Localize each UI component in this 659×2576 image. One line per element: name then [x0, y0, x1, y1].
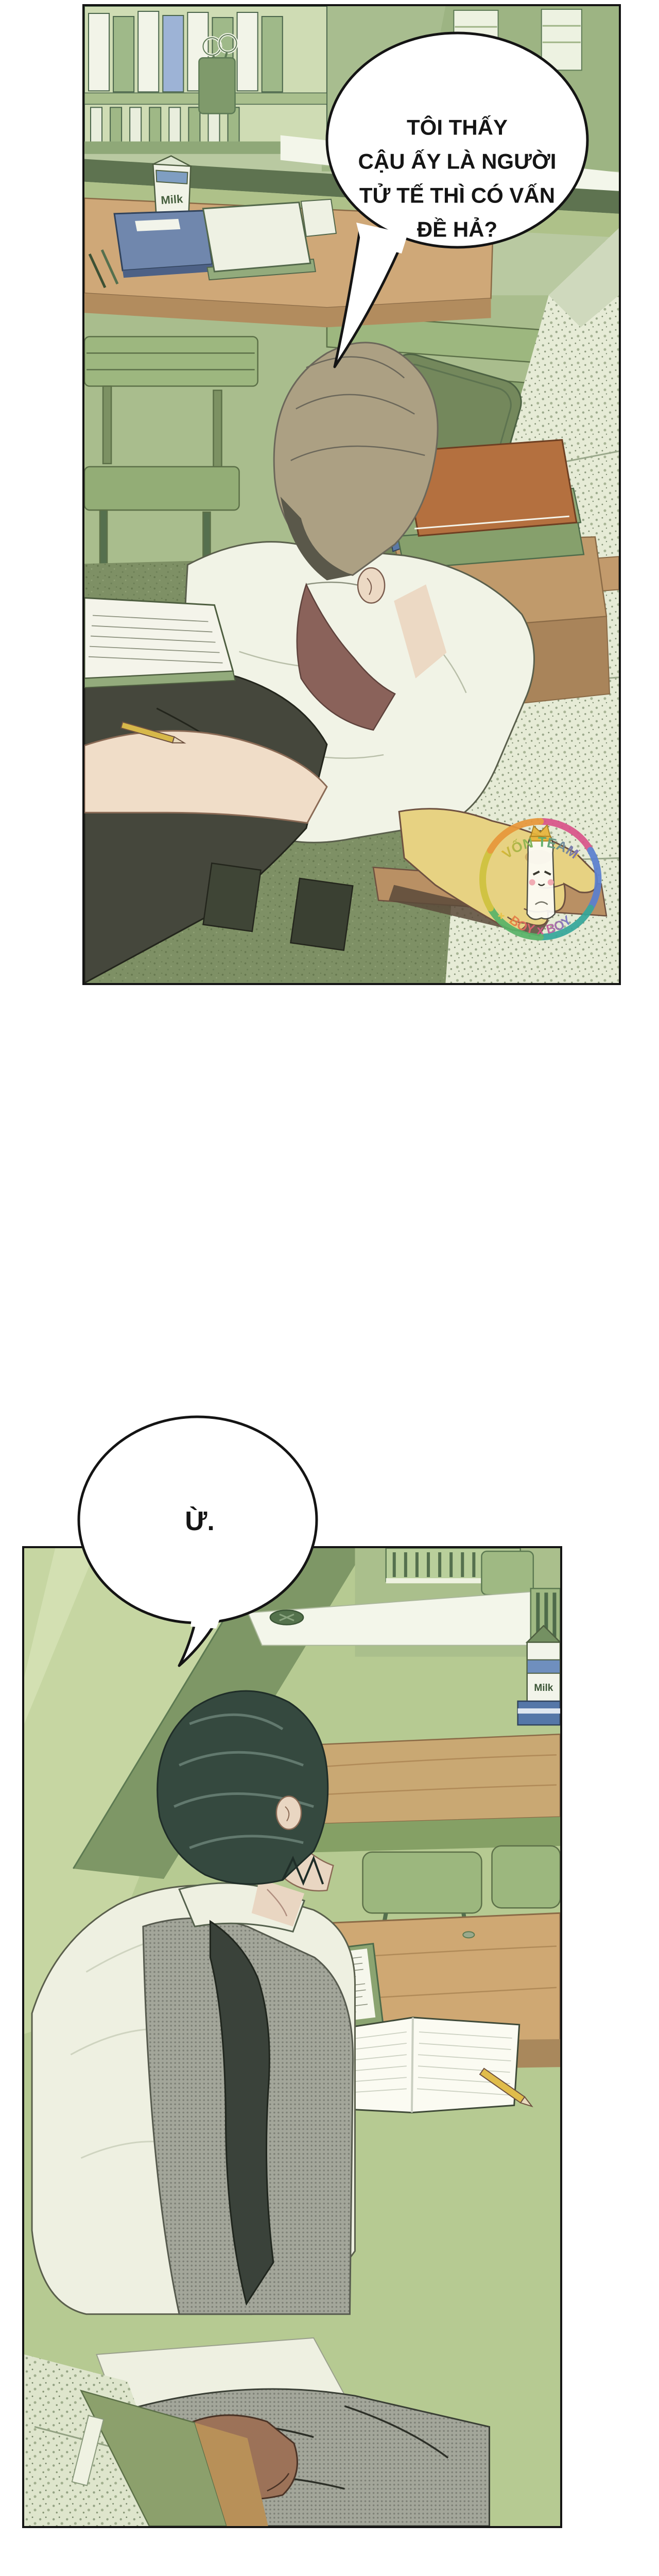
green-box [481, 1551, 533, 1595]
milk-label-2: Milk [534, 1683, 553, 1693]
white-book [203, 202, 315, 280]
hair-2 [158, 1691, 328, 1884]
paper-sheet [301, 199, 336, 236]
panel-1-scene: Milk [84, 6, 619, 983]
chair-foot-1 [203, 863, 261, 931]
blue-case [518, 1701, 560, 1725]
cap-object [270, 1610, 303, 1624]
panel-2-scene: Milk [24, 1548, 560, 2526]
blue-notebook [114, 211, 213, 278]
panel-2: Milk [22, 1546, 562, 2528]
comic-page: Milk [0, 0, 659, 2576]
chair-foot-2 [291, 878, 353, 951]
milk-carton-2: Milk [527, 1625, 560, 1703]
open-book [84, 598, 235, 687]
milk-carton: Milk [153, 156, 190, 216]
bubble-2-text: Ừ. [185, 1506, 215, 1536]
milk-label: Milk [161, 192, 184, 207]
panel-1: Milk [82, 4, 621, 985]
